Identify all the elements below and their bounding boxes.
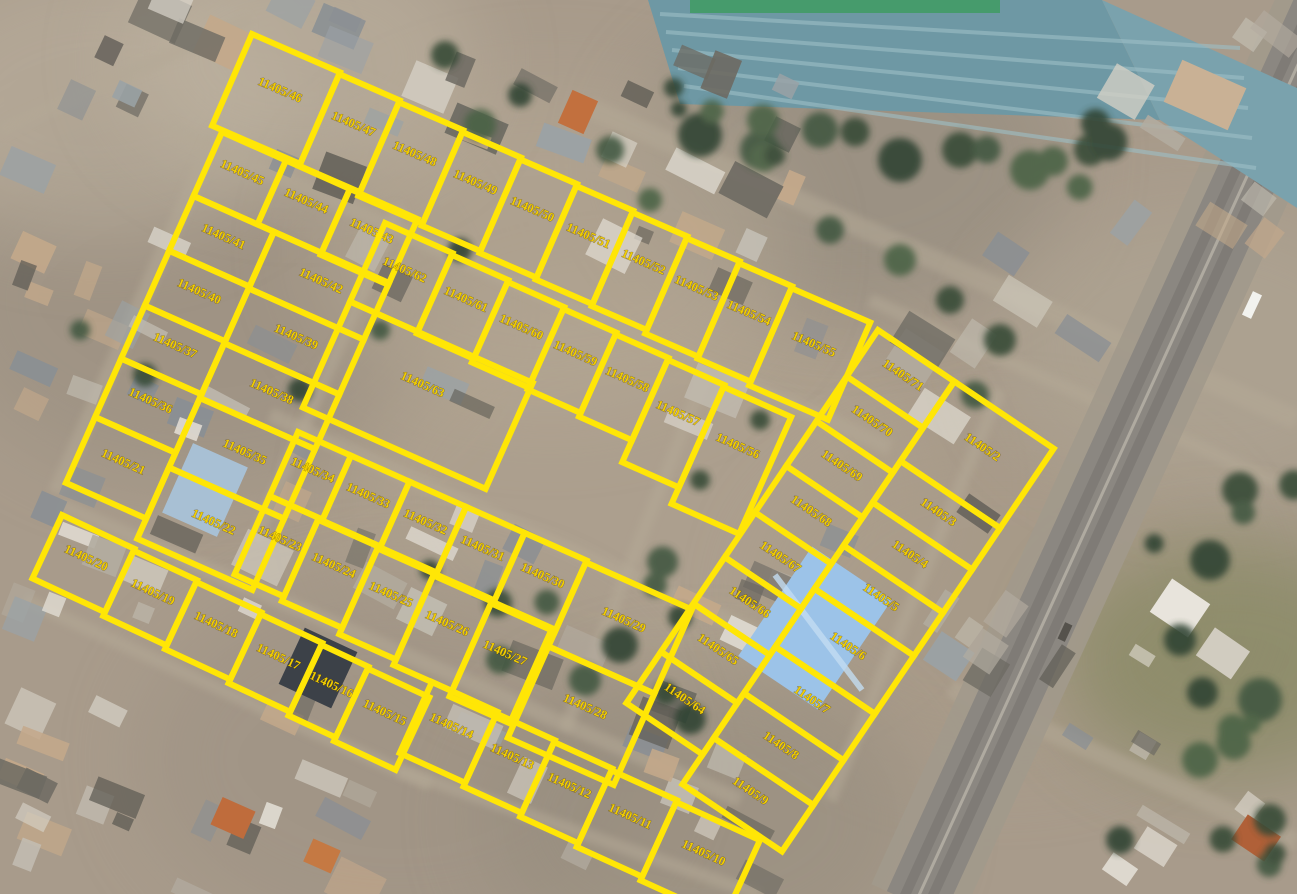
satellite-map-canvas[interactable]: 11405/4611405/4711405/4811405/4911405/50… — [0, 0, 1297, 894]
map-viewport: 11405/4611405/4711405/4811405/4911405/50… — [0, 0, 1297, 894]
satellite-imagery-background — [0, 0, 1297, 894]
